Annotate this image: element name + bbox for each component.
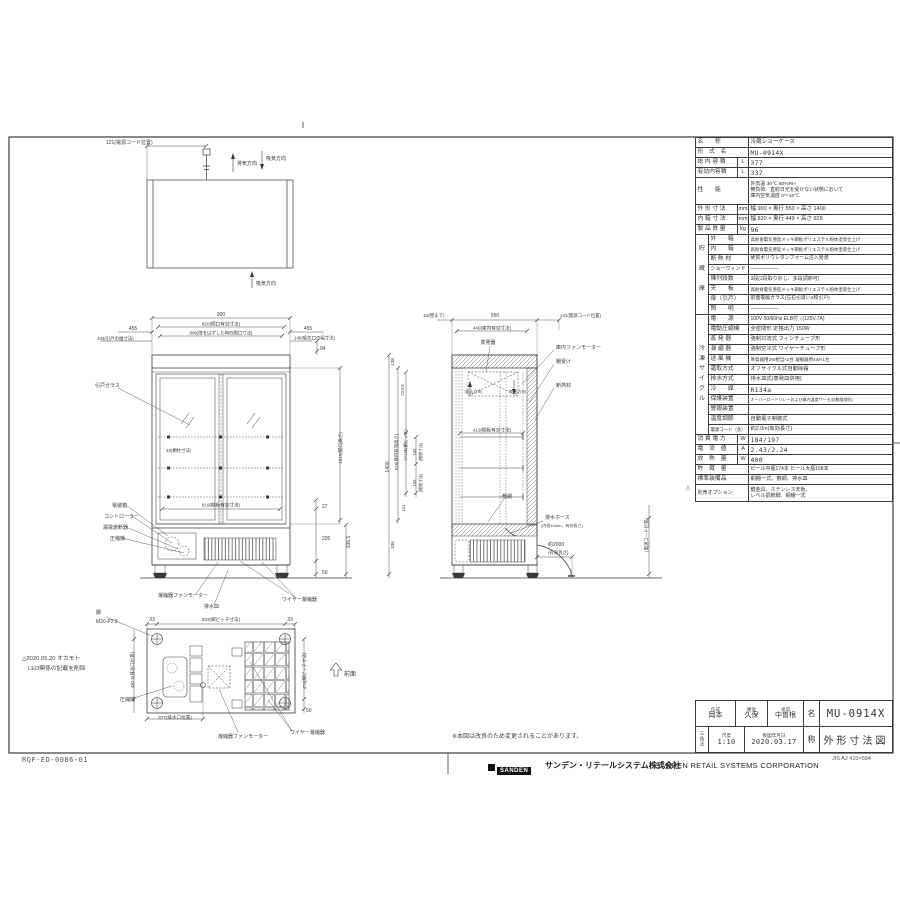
spec-cell: 消 費 電 力 xyxy=(696,435,738,445)
spec-cell: オフサイクル式自動除霜 xyxy=(749,365,892,375)
drawing-annotation: 50 xyxy=(306,708,312,714)
drawing-annotation: 凝縮器ファンモーター xyxy=(218,733,268,740)
drawing-annotation: (棚間寸法) xyxy=(417,442,423,461)
drawing-annotation: 排水ホース xyxy=(545,514,570,521)
spec-cell: オーバーロードリレーおよび庫内温度サーモ(自動復帰形) xyxy=(749,395,892,405)
spec-cell: 形 式 名 xyxy=(696,148,749,158)
spec-cell: 貯 蔵 量 xyxy=(696,465,749,475)
spec-row: 標準装備品網棚一式、敷網、排水皿 xyxy=(696,475,892,485)
spec-cell: 凍 xyxy=(696,355,709,365)
spec-cell xyxy=(696,305,709,315)
spec-cell: 庫 xyxy=(696,285,709,295)
condenser-fins xyxy=(470,540,525,562)
spec-cell: ル xyxy=(696,395,709,405)
drawing-annotation: 336.5 xyxy=(346,536,352,549)
spec-cell: 名 称 xyxy=(696,138,749,148)
drawing-annotation: 吸気方向 xyxy=(256,280,276,287)
projection-method: 三角法 xyxy=(696,727,709,752)
spec-row: 製 品 質 量kg96 xyxy=(696,225,892,235)
side-view xyxy=(387,318,662,578)
spec-row: 形 式 名MU-0914X xyxy=(696,148,892,158)
drawing-annotation: 94 xyxy=(320,346,326,352)
drawing-annotation: 敷網 xyxy=(502,493,512,500)
spec-cell: 337 xyxy=(749,168,892,178)
spec-cell: 冷 媒 xyxy=(709,385,749,395)
revision-note-line2: LED関係の記載を削除 xyxy=(28,663,86,672)
spec-cell: サ xyxy=(696,365,709,375)
drawing-annotation: 脚 xyxy=(96,609,101,616)
drawing-annotation: 138 xyxy=(390,358,395,366)
spec-cell: 高耐食電気亜鉛メッキ鋼板ポリエステル粉体塗装仕上げ xyxy=(749,245,892,255)
electrical-parts xyxy=(190,646,242,708)
front-leaders xyxy=(118,388,296,605)
logo-mark-icon xyxy=(488,764,495,771)
spec-row: 温度調節自動電子制御式 xyxy=(696,415,892,425)
drawing-annotation: 833(脚ピッチ寸法) xyxy=(202,616,241,623)
spec-cell: 96 xyxy=(749,225,892,235)
spec-cell: 霜取方式 xyxy=(709,365,749,375)
spec-cell: 約2.0m(有効長さ) xyxy=(749,425,892,435)
spec-cell: R134a xyxy=(749,385,892,395)
company-name-en: SANDEN RETAIL SYSTEMS CORPORATION xyxy=(655,761,819,770)
drawing-annotation: 344(引戸の幅寸法) xyxy=(97,335,134,342)
drawing-annotation: コントローラー xyxy=(104,514,139,520)
spec-cell: W xyxy=(738,455,749,465)
drawing-annotation: ワイヤー凝縮器 xyxy=(290,729,325,736)
spec-cell: 凝 縮 器 xyxy=(709,345,749,355)
checked-value: 久保 xyxy=(745,712,759,720)
spec-cell: 377 xyxy=(749,158,892,168)
company-logo: SANDEN xyxy=(488,759,531,777)
spec-cell: 排水皿式(蒸発皿併用) xyxy=(749,375,892,385)
drawing-annotation: 排水皿 xyxy=(204,603,219,610)
drawing-annotation: 33 xyxy=(149,617,155,623)
spec-cell: イ xyxy=(696,375,709,385)
drawing-annotation: (棚間寸法) xyxy=(417,473,423,492)
airflow-arrows xyxy=(231,151,264,288)
spec-cell: W xyxy=(738,435,749,445)
drawing-annotation: 吸込方向 xyxy=(465,388,482,395)
drawing-annotation: 419(棚板有効寸法) xyxy=(473,427,512,434)
spec-cell: 外 箱 xyxy=(709,235,749,245)
drawing-annotation: 4×125(棚ピッチ) xyxy=(402,429,409,461)
drawing-annotation: 吹出方向 xyxy=(509,388,526,395)
spec-cell: 排水方式 xyxy=(709,375,749,385)
spec-row: 別売オプション鍵金具、ステンレス天板、 レベル調節脚、網棚一式 xyxy=(696,485,892,502)
spec-cell: 幅 900 × 奥行 550 × 高さ 1400 xyxy=(749,205,892,215)
spec-row: 有効内容積L337 xyxy=(696,168,892,178)
spec-cell: 電 源 xyxy=(709,315,749,325)
revision-note-line1: △2020.05.20 オカモト xyxy=(22,653,80,662)
titleblock-checked: 審査 久保 xyxy=(736,701,768,727)
date-value: 2020.03.17 xyxy=(751,738,796,746)
spec-row: 蒸 発 器強制対流式 フィンチューブ形 xyxy=(696,335,892,345)
spec-cell: 184/197 xyxy=(749,435,892,445)
spec-cell: 温度調節 xyxy=(709,415,749,425)
spec-cell xyxy=(749,405,892,415)
drawing-annotation: 377(排水口位置) xyxy=(158,714,192,721)
insulation xyxy=(527,368,537,525)
spec-cell xyxy=(696,415,709,425)
spec-cell: 放 熱 量 xyxy=(696,455,738,465)
spec-cell: 強制対流式 フィンチューブ形 xyxy=(749,335,892,345)
drawing-annotation: 928(庫内有効高さ) xyxy=(393,433,400,470)
drawing-annotation: 排気方向 xyxy=(237,160,257,167)
spec-row: 貯内 箱高耐食電気亜鉛メッキ鋼板ポリエステル粉体塗装仕上げ xyxy=(696,245,892,255)
drawing-annotation: 140(吸気口の幅寸法) xyxy=(294,335,336,342)
spec-cell: 蔵 xyxy=(696,265,709,275)
spec-cell: 外 形 寸 法 xyxy=(696,205,738,215)
drawing-annotation: (電源コード位置) xyxy=(643,518,650,552)
spec-cell: 保護装置 xyxy=(709,395,749,405)
spec-cell: 高耐食電気亜鉛メッキ鋼板ポリエステル粉体塗装仕上げ xyxy=(749,285,892,295)
side-shelves xyxy=(460,434,523,500)
drawing-annotation: 205 xyxy=(322,536,331,542)
spec-row: 電 源100V 50/60Hz ELB付 ○(125V.7A) xyxy=(696,315,892,325)
spec-row: 内 箱 寸 法mm幅 820 × 奥行 449 × 高さ 928 xyxy=(696,215,892,225)
spec-cell: 高耐食電気亜鉛メッキ鋼板ポリエステル粉体塗装仕上げ xyxy=(749,235,892,245)
spec-row: イ排水方式排水皿式(蒸発皿併用) xyxy=(696,375,892,385)
spec-row: 放 熱 量W400 xyxy=(696,455,892,465)
scale-cell: 尺度 1:10 xyxy=(709,727,745,752)
spec-cell: 警報装置 xyxy=(709,405,749,415)
drawing-annotation: 336 xyxy=(390,541,395,549)
drawing-annotation: △ xyxy=(686,485,690,491)
spec-row: 電動圧縮機全密閉形 定格出力 150W xyxy=(696,325,892,335)
spec-cell: 冷 xyxy=(696,345,709,355)
spec-row: 電 流 値A2.43/2.24 xyxy=(696,445,892,455)
document-code: RQF-ED-0086-01 xyxy=(22,756,88,764)
model-number: MU-0914X xyxy=(820,701,892,727)
drawing-annotation: 482.5(排水口位置) xyxy=(129,652,136,688)
drawing-annotation: M20-P2.5 xyxy=(96,619,118,625)
spec-row: 断 熱 材硬質ポリウレタンフォーム注入発泡 xyxy=(696,255,892,265)
drawing-annotation: 27 xyxy=(322,504,328,510)
spec-cell xyxy=(696,335,709,345)
spec-cell xyxy=(696,275,709,285)
spec-row: 消 費 電 力W184/197 xyxy=(696,435,892,445)
spec-cell: 外気温 30℃ 60%RH 無負荷、直射日光を受けない状態において 庫内空気温度… xyxy=(749,178,892,205)
spec-cell: 断 熱 材 xyxy=(709,255,749,265)
spec-cell: 400 xyxy=(749,455,892,465)
spec-row: 庫天 板高耐食電気亜鉛メッキ鋼板ポリエステル粉体塗装仕上げ xyxy=(696,285,892,295)
spec-cell: 標準装備品 xyxy=(696,475,749,485)
spec-cell: 網棚一式、敷網、排水皿 xyxy=(749,475,892,485)
drawing-annotation: 引戸ガラス xyxy=(95,382,120,389)
side-leaders xyxy=(486,346,554,533)
drawing-annotation: 224.5 xyxy=(400,384,405,396)
drawing-annotation: 電装箱 xyxy=(112,502,127,509)
spec-row: ク冷 媒R134a xyxy=(696,385,892,395)
spec-cell: 内 箱 寸 法 xyxy=(696,215,738,225)
drawing-annotation: 圧縮機 xyxy=(120,696,135,703)
spec-cell: 別売オプション xyxy=(696,485,749,502)
spec-row: 外 箱高耐食電気亜鉛メッキ鋼板ポリエステル粉体塗装仕上げ xyxy=(696,235,892,245)
spec-cell: ビール中瓶174本 ビール大瓶168本 xyxy=(749,465,892,475)
spec-row: 扉（引戸）前面複層ガラス(左右引違い2枚引戸) xyxy=(696,295,892,305)
spec-table: 名 称冷蔵ショーケース形 式 名MU-0914X総 内 容 積L377有効内容積… xyxy=(695,137,893,502)
spec-row: 電源コード（長）約2.0m(有効長さ) xyxy=(696,425,892,435)
change-note: ※本図は改良のため変更されることがあります。 xyxy=(452,731,582,740)
drawing-annotation: 前面 xyxy=(344,670,356,678)
spec-cell: ク xyxy=(696,385,709,395)
logo-text: SANDEN xyxy=(497,767,531,775)
spec-cell: 100V 50/60Hz ELB付 ○(125V.7A) xyxy=(749,315,892,325)
spec-row: 外 形 寸 法mm幅 900 × 奥行 550 × 高さ 1400 xyxy=(696,205,892,215)
drawing-title: 外形寸法図 xyxy=(820,727,892,752)
spec-cell: 幅 820 × 奥行 449 × 高さ 928 xyxy=(749,215,892,225)
drawing-annotation: 蒸発器 xyxy=(480,339,495,346)
title-block: 作成 岡本 審査 久保 承認 中曽根 名 MU-0914X 三角法 尺度 1:1… xyxy=(695,700,893,753)
drawing-annotation: 1400 xyxy=(385,461,391,472)
spec-cell xyxy=(696,235,709,245)
drawing-annotation: 庫内ファンモーター xyxy=(556,344,601,351)
spec-cell: 2.43/2.24 xyxy=(749,445,892,455)
spec-cell: 全密閉形 定格出力 150W xyxy=(749,325,892,335)
drawing-annotation: 凝縮器ファンモーター xyxy=(158,592,208,599)
spec-cell: 内 箱 xyxy=(709,245,749,255)
top-view xyxy=(145,144,293,288)
drain-hole xyxy=(201,683,206,688)
drawing-annotation: 455 xyxy=(304,326,313,332)
shelf-clips xyxy=(167,436,269,499)
spec-cell: mm xyxy=(738,215,749,225)
titleblock-created: 作成 岡本 xyxy=(696,701,736,727)
spec-cell: ――――― xyxy=(749,305,892,315)
spec-cell: 扉（引戸） xyxy=(709,295,749,305)
spec-cell xyxy=(696,325,709,335)
spec-cell: L xyxy=(738,168,749,178)
drawing-annotation: 圧縮機 xyxy=(110,535,125,542)
drawing-annotation: 断熱材 xyxy=(556,382,571,389)
spec-row: サ霜取方式オフサイクル式自動除霜 xyxy=(696,365,892,375)
annotation-layer: 121(電源コード位置)排気方向吸気方向吸気方向900820(間口有効寸法)80… xyxy=(95,139,690,740)
spec-cell: ショーウィンド xyxy=(709,265,749,275)
spec-row: 貯 蔵 量ビール中瓶174本 ビール大瓶168本 xyxy=(696,465,892,475)
drawing-annotation: ワイヤー凝縮器 xyxy=(282,596,317,603)
wire-condenser xyxy=(245,642,289,710)
spec-cell: A xyxy=(738,445,749,455)
drawing-annotation: (有効長さ) xyxy=(548,549,569,556)
spec-cell xyxy=(696,315,709,325)
drawing-title-label: 称 xyxy=(804,727,820,752)
spec-cell xyxy=(696,405,709,415)
paper-size-note: JIS A2 420×594 xyxy=(832,756,871,762)
spec-row: 凍送 風 機蒸発器用2W相当×2台 凝縮器用4W×1台 xyxy=(696,355,892,365)
drawing-annotation: 474(脚ピッチ寸法) xyxy=(301,652,308,689)
condenser-fan xyxy=(208,666,230,688)
spec-cell xyxy=(696,255,709,265)
drawing-annotation: 550 xyxy=(491,313,500,319)
drawing-annotation: 900 xyxy=(217,312,226,318)
spec-cell: 強制空冷式 ワイヤーチューブ形 xyxy=(749,345,892,355)
scale-value: 1:10 xyxy=(717,738,735,746)
created-value: 岡本 xyxy=(709,712,723,720)
adjuster-feet xyxy=(153,573,289,578)
spec-cell: 硬質ポリウレタンフォーム注入発泡 xyxy=(749,255,892,265)
spec-cell: 自動電子制御式 xyxy=(749,415,892,425)
drawing-annotation: 105 xyxy=(412,448,417,456)
front-view xyxy=(100,316,352,605)
drawing-annotation: (内径15mm、有効長さ) xyxy=(541,522,583,528)
spec-cell: 陳列段数 xyxy=(709,275,749,285)
drawing-annotation: 約2000 xyxy=(548,541,564,548)
drawing-annotation: 33 xyxy=(287,617,293,623)
drawing-annotation: 105 xyxy=(412,479,417,487)
spec-row: 名 称冷蔵ショーケース xyxy=(696,138,892,148)
spec-row: ル保護装置オーバーロードリレーおよび庫内温度サーモ(自動復帰形) xyxy=(696,395,892,405)
spec-cell: 照 明 xyxy=(709,305,749,315)
spec-row: 警報装置 xyxy=(696,405,892,415)
spec-cell: kg xyxy=(738,225,749,235)
drawing-sheet: { "doc": { "drawing_code": "RQF-ED-0086-… xyxy=(0,0,900,900)
drawing-annotation: 吸気方向 xyxy=(266,155,286,162)
drawing-annotation: 111 xyxy=(401,504,406,511)
spec-cell: 3段(2段取り外し、多段調節可) xyxy=(749,275,892,285)
front-direction-arrow xyxy=(331,663,342,676)
spec-cell: 性 能 xyxy=(696,178,749,205)
drawing-annotation: 漏電遮断器 xyxy=(103,524,128,531)
spec-cell: 送 風 機 xyxy=(709,355,749,365)
spec-cell: 電動圧縮機 xyxy=(709,325,749,335)
spec-cell: 天 板 xyxy=(709,285,749,295)
spec-row: 総 内 容 積L377 xyxy=(696,158,892,168)
spec-cell: ――――― xyxy=(749,265,892,275)
spec-cell: 蒸 発 器 xyxy=(709,335,749,345)
drawing-annotation: 33(棚柱寸法) xyxy=(166,447,192,454)
approved-value: 中曽根 xyxy=(775,712,796,720)
drawing-annotation: 449(庫内有効寸法) xyxy=(473,325,512,332)
spec-cell: 総 内 容 積 xyxy=(696,158,738,168)
spec-row: 性 能外気温 30℃ 60%RH 無負荷、直射日光を受けない状態において 庫内空… xyxy=(696,178,892,205)
drawing-annotation: 819(棚板有効寸法) xyxy=(202,502,241,509)
spec-cell: 冷蔵ショーケース xyxy=(749,138,892,148)
drawing-annotation: 1015(開口高さ) xyxy=(337,432,344,464)
spec-row: 冷凝 縮 器強制空冷式 ワイヤーチューブ形 xyxy=(696,345,892,355)
drawing-annotation: 141(電源コード位置) xyxy=(560,312,602,319)
drawing-annotation: 121(電源コード位置) xyxy=(106,139,153,146)
drawing-annotation: 棚受け xyxy=(556,358,571,365)
spec-row: 陳列段数3段(2段取り外し、多段調節可) xyxy=(696,275,892,285)
spec-cell: 貯 xyxy=(696,245,709,255)
compressor-outline xyxy=(163,657,187,697)
drawing-annotation: 809(扉をはずした時の開口寸法) xyxy=(190,330,253,337)
spec-cell: 電 流 値 xyxy=(696,445,738,455)
spec-table-rows: 名 称冷蔵ショーケース形 式 名MU-0914X総 内 容 積L377有効内容積… xyxy=(696,138,892,502)
date-cell: 製図年月日 2020.03.17 xyxy=(745,727,804,752)
spec-cell: mm xyxy=(738,205,749,215)
drawing-annotation: 455 xyxy=(129,326,138,332)
titleblock-approved: 承認 中曽根 xyxy=(768,701,804,727)
model-label: 名 xyxy=(804,701,820,727)
drawing-annotation: 53(壁まで) xyxy=(424,312,446,318)
spec-cell: 電源コード（長） xyxy=(709,425,749,435)
spec-cell: L xyxy=(738,158,749,168)
glass-marks xyxy=(181,413,260,428)
drawing-annotation: 820(間口有効寸法) xyxy=(202,321,241,328)
spec-cell: 蒸発器用2W相当×2台 凝縮器用4W×1台 xyxy=(749,355,892,365)
spec-row: 照 明――――― xyxy=(696,305,892,315)
spec-cell xyxy=(696,425,709,435)
spec-cell: 前面複層ガラス(左右引違い2枚引戸) xyxy=(749,295,892,305)
spec-cell: MU-0914X xyxy=(749,148,892,158)
spec-cell xyxy=(696,295,709,305)
spec-row: 蔵ショーウィンド――――― xyxy=(696,265,892,275)
louver-grille xyxy=(204,538,276,560)
drawing-annotation: 50 xyxy=(322,570,328,576)
spec-cell: 有効内容積 xyxy=(696,168,738,178)
spec-cell: 製 品 質 量 xyxy=(696,225,738,235)
spec-cell: 鍵金具、ステンレス天板、 レベル調節脚、網棚一式 xyxy=(749,485,892,502)
